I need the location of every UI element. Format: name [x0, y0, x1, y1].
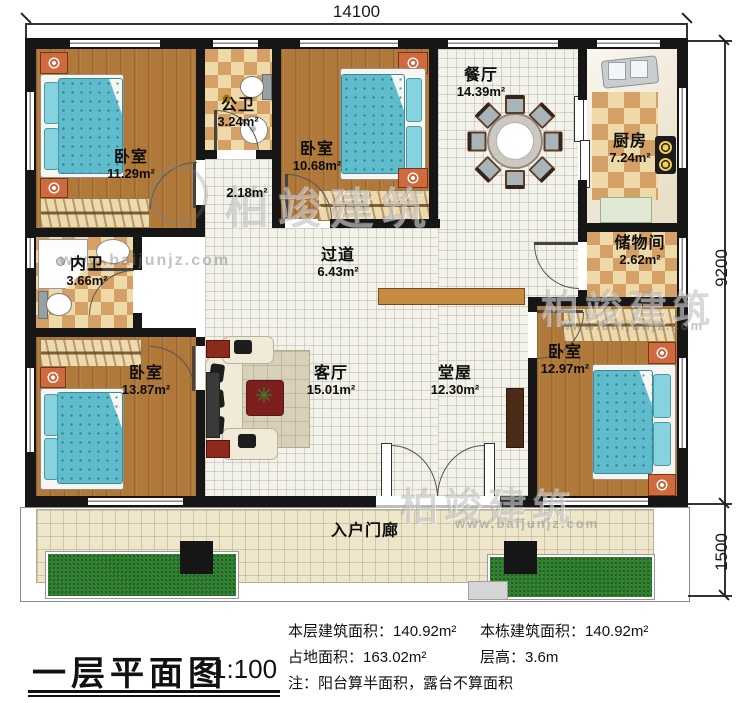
wall-int	[578, 49, 587, 100]
porch-column-right	[504, 541, 537, 574]
tv-screen	[206, 372, 220, 438]
wall-int	[196, 337, 205, 346]
wall-int	[36, 328, 196, 337]
bed-pillow	[406, 78, 422, 122]
toilet-bowl	[240, 76, 264, 98]
side-cabinet	[506, 388, 524, 448]
wall-int	[272, 219, 285, 228]
window	[70, 38, 160, 49]
shower-drain	[56, 257, 65, 266]
window	[213, 38, 258, 49]
dining-chair	[544, 132, 563, 152]
window	[25, 238, 36, 268]
dim-line-right	[724, 40, 726, 597]
nightstand	[40, 367, 66, 388]
bed-pillow	[653, 422, 671, 466]
porch-step	[468, 581, 508, 600]
wardrobe	[40, 198, 150, 228]
toilet-bowl	[46, 293, 72, 316]
dining-chair	[468, 132, 487, 152]
room-label-dining: 餐厅 14.39m²	[457, 68, 505, 98]
kitchen-sink-basin	[630, 60, 648, 78]
door-leaf	[192, 346, 195, 391]
wall-int	[330, 219, 440, 228]
kitchen-cabinet	[600, 197, 652, 223]
sheet-scale: 1:100	[212, 654, 277, 685]
wall-int	[578, 223, 677, 232]
wall-int	[196, 390, 205, 496]
wall-int	[272, 49, 281, 228]
room-label-corridor: 过道 6.43m²	[317, 248, 358, 278]
wardrobe	[40, 339, 142, 367]
room-label-hallway-nook: 2.18m²	[226, 186, 267, 200]
room-label-bedroom-bottom-right: 卧室 12.97m²	[541, 345, 589, 375]
wall-int	[528, 297, 677, 306]
window	[25, 368, 36, 452]
wall-int	[205, 150, 217, 159]
wardrobe	[318, 190, 431, 221]
dim-height-main: 9200	[712, 249, 732, 287]
bed-mattress	[593, 370, 653, 474]
kitchen-sliding-door	[574, 96, 584, 142]
room-label-living: 客厅 15.01m²	[307, 366, 355, 396]
kitchen-sink-basin	[608, 62, 626, 80]
window	[448, 38, 558, 49]
room-label-storage: 储物间 2.62m²	[614, 236, 665, 266]
dim-width-top: 14100	[25, 2, 688, 22]
stat-floor-area: 本层建筑面积：140.92m²	[288, 620, 456, 641]
dining-table-top	[496, 122, 534, 160]
door-leaf	[534, 242, 578, 245]
window	[25, 92, 36, 170]
nightstand	[398, 168, 428, 188]
nightstand	[648, 342, 676, 364]
window	[597, 38, 660, 49]
wall-int	[429, 49, 438, 228]
bed-pillow	[653, 374, 671, 418]
room-label-entry-porch: 入户门廊	[331, 524, 399, 541]
bed-pillow	[44, 438, 58, 480]
sofa-pillow	[234, 340, 252, 354]
room-label-master-bathroom: 内卫 3.66m²	[66, 257, 107, 287]
wall-int	[528, 306, 537, 312]
entry-door-leaf	[381, 443, 392, 499]
room-label-bedroom-top-middle: 卧室 10.68m²	[293, 142, 341, 172]
room-label-kitchen: 厨房 7.24m²	[609, 134, 650, 164]
nightstand	[40, 52, 68, 74]
wall-int	[578, 232, 587, 242]
plant: ✳	[252, 381, 276, 411]
entry-door-leaf	[484, 443, 495, 499]
window	[677, 88, 688, 168]
wall-int	[36, 228, 205, 237]
wall-int	[196, 49, 205, 160]
stove-burner	[659, 158, 672, 171]
door-leaf	[285, 174, 288, 219]
floor-plan-sheet: ✳	[0, 0, 750, 703]
nightstand	[40, 178, 68, 198]
dim-ext	[25, 25, 27, 38]
door-leaf	[537, 310, 583, 313]
dining-chair	[505, 170, 525, 189]
porch-column-left	[180, 541, 213, 574]
window	[677, 358, 688, 448]
nightstand	[648, 474, 676, 496]
bed-pillow	[44, 128, 59, 170]
stove-burner	[659, 141, 672, 154]
window	[677, 238, 688, 296]
dim-ext	[686, 25, 688, 38]
stat-note: 注：阳台算半面积，露台不算面积	[288, 672, 513, 693]
title-underline	[28, 695, 280, 697]
stat-land-area: 占地面积：163.02m²	[288, 646, 426, 667]
room-label-main-hall: 堂屋 12.30m²	[431, 366, 479, 396]
bed-pillow	[406, 126, 422, 170]
bed-pillow	[44, 394, 58, 436]
tv-cabinet	[206, 340, 230, 358]
dim-height-porch: 1500	[712, 533, 732, 571]
console-table	[378, 288, 525, 305]
bed-mattress	[341, 74, 405, 174]
room-label-public-bathroom: 公卫 3.24m²	[217, 98, 258, 128]
dining-chair	[505, 95, 525, 114]
room-label-bedroom-top-left: 卧室 11.29m²	[107, 150, 155, 180]
entry-threshold	[376, 505, 500, 508]
sofa-pillow	[238, 434, 256, 448]
bed-mattress	[57, 392, 123, 484]
title-underline	[28, 690, 280, 693]
tv-cabinet	[206, 440, 230, 458]
bed-pillow	[44, 82, 59, 124]
wall-int	[528, 358, 537, 496]
window	[300, 38, 398, 49]
room-label-bedroom-bottom-left: 卧室 13.87m²	[122, 366, 170, 396]
sheet-title: 一层平面图	[32, 646, 227, 695]
stat-storey-height: 层高：3.6m	[480, 646, 558, 667]
stat-building-area: 本栋建筑面积：140.92m²	[480, 620, 648, 641]
dim-line-top	[25, 23, 688, 25]
watermark-logo	[150, 165, 208, 225]
window	[88, 496, 183, 507]
window	[543, 496, 648, 507]
wall-int	[133, 237, 142, 270]
